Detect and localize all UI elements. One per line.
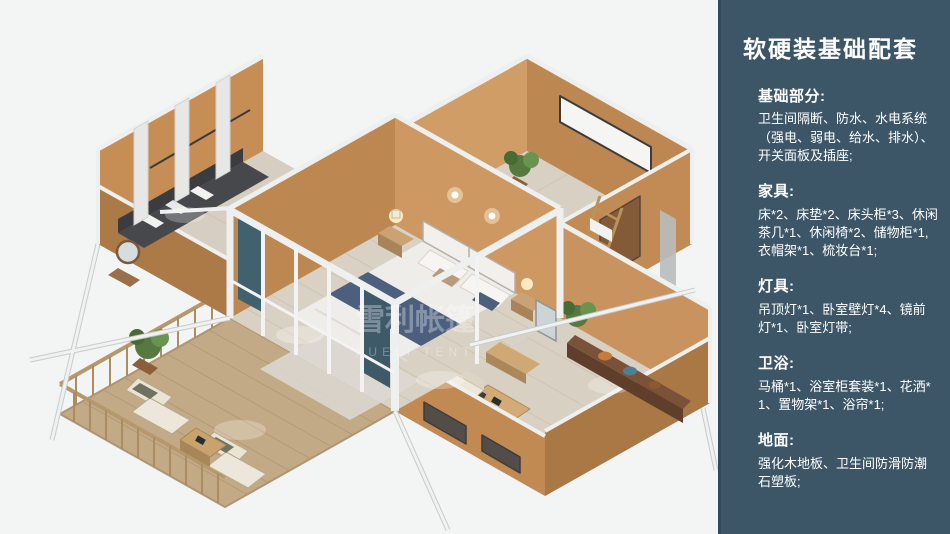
- section-lighting-body: 吊顶灯*1、卧室壁灯*4、镜前灯*1、卧室灯带;: [758, 301, 938, 337]
- section-bathroom: 卫浴: 马桶*1、浴室柜套装*1、花洒*1、置物架*1、浴帘*1;: [758, 355, 938, 414]
- section-floor: 地面: 强化木地板、卫生间防滑防潮石塑板;: [758, 432, 938, 491]
- spec-sections: 基础部分: 卫生间隔断、防水、水电系统（强电、弱电、给水、排水）、开关面板及插座…: [758, 88, 938, 492]
- section-bathroom-body: 马桶*1、浴室柜套装*1、花洒*1、置物架*1、浴帘*1;: [758, 378, 938, 414]
- floorplan-illustration: 雪利帐篷 XUELI TENT: [0, 0, 718, 534]
- section-furniture-heading: 家具:: [758, 183, 938, 202]
- page: 雪利帐篷 XUELI TENT 软硬装基础配套 基础部分: 卫生间隔断、防水、水…: [0, 0, 950, 534]
- section-furniture-body: 床*2、床垫*2、床头柜*3、休闲茶几*1、休闲椅*2、储物柜*1, 衣帽架*1…: [758, 206, 938, 261]
- section-basic: 基础部分: 卫生间隔断、防水、水电系统（强电、弱电、给水、排水）、开关面板及插座…: [758, 88, 938, 165]
- section-basic-body: 卫生间隔断、防水、水电系统（强电、弱电、给水、排水）、开关面板及插座;: [758, 110, 938, 165]
- section-floor-heading: 地面:: [758, 432, 938, 451]
- watermark: 雪利帐篷 XUELI TENT: [355, 304, 475, 359]
- section-furniture: 家具: 床*2、床垫*2、床头柜*3、休闲茶几*1、休闲椅*2、储物柜*1, 衣…: [758, 183, 938, 260]
- section-floor-body: 强化木地板、卫生间防滑防潮石塑板;: [758, 455, 938, 491]
- section-basic-heading: 基础部分:: [758, 88, 938, 107]
- floorplan-render: 雪利帐篷 XUELI TENT: [0, 0, 718, 534]
- panel-title: 软硬装基础配套: [743, 36, 938, 64]
- section-bathroom-heading: 卫浴:: [758, 355, 938, 374]
- spec-panel: 软硬装基础配套 基础部分: 卫生间隔断、防水、水电系统（强电、弱电、给水、排水）…: [718, 0, 950, 534]
- section-lighting: 灯具: 吊顶灯*1、卧室壁灯*4、镜前灯*1、卧室灯带;: [758, 278, 938, 337]
- section-lighting-heading: 灯具:: [758, 278, 938, 297]
- watermark-en: XUELI TENT: [355, 345, 474, 359]
- watermark-cn: 雪利帐篷: [355, 304, 475, 337]
